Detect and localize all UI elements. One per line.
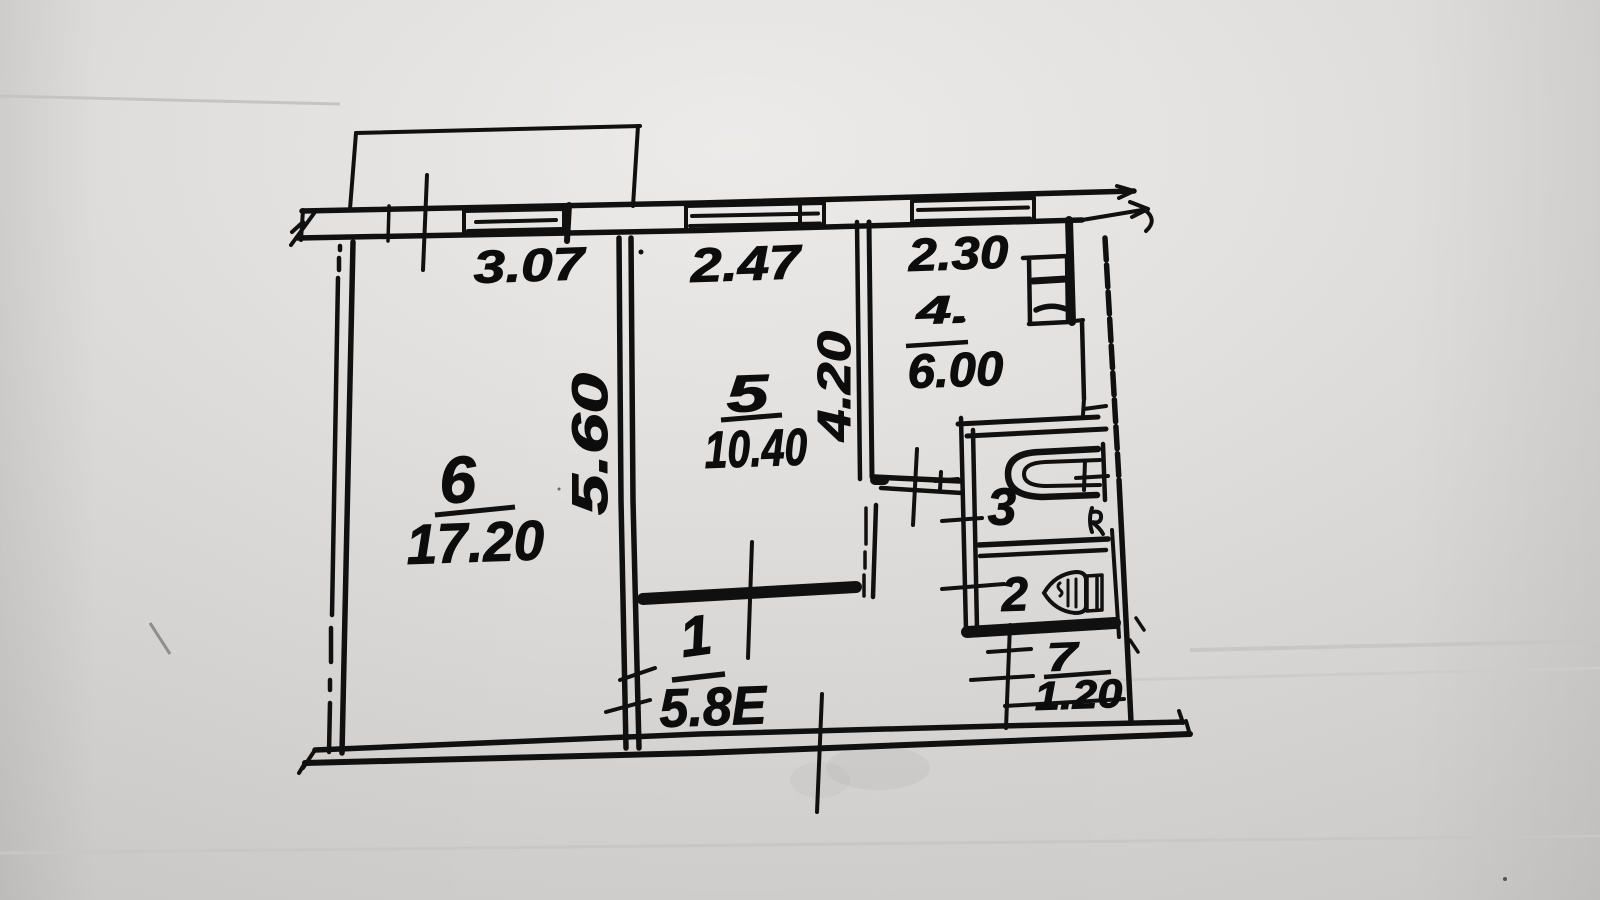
svg-text:5.60: 5.60 (562, 373, 618, 515)
svg-text:2.47: 2.47 (688, 236, 804, 293)
svg-text:6.00: 6.00 (907, 343, 1005, 399)
svg-text:5.8Е: 5.8Е (658, 675, 769, 739)
svg-text:2.30: 2.30 (906, 226, 1009, 282)
svg-text:4.20: 4.20 (808, 330, 860, 442)
svg-text:4.: 4. (914, 288, 969, 333)
svg-text:17.20: 17.20 (405, 508, 545, 576)
svg-text:2: 2 (1000, 568, 1030, 622)
svg-text:3: 3 (986, 478, 1017, 537)
svg-text:1.20: 1.20 (1034, 672, 1123, 719)
svg-text:10.40: 10.40 (703, 418, 808, 480)
svg-text:3.07: 3.07 (473, 237, 589, 293)
svg-text:6: 6 (438, 442, 479, 517)
